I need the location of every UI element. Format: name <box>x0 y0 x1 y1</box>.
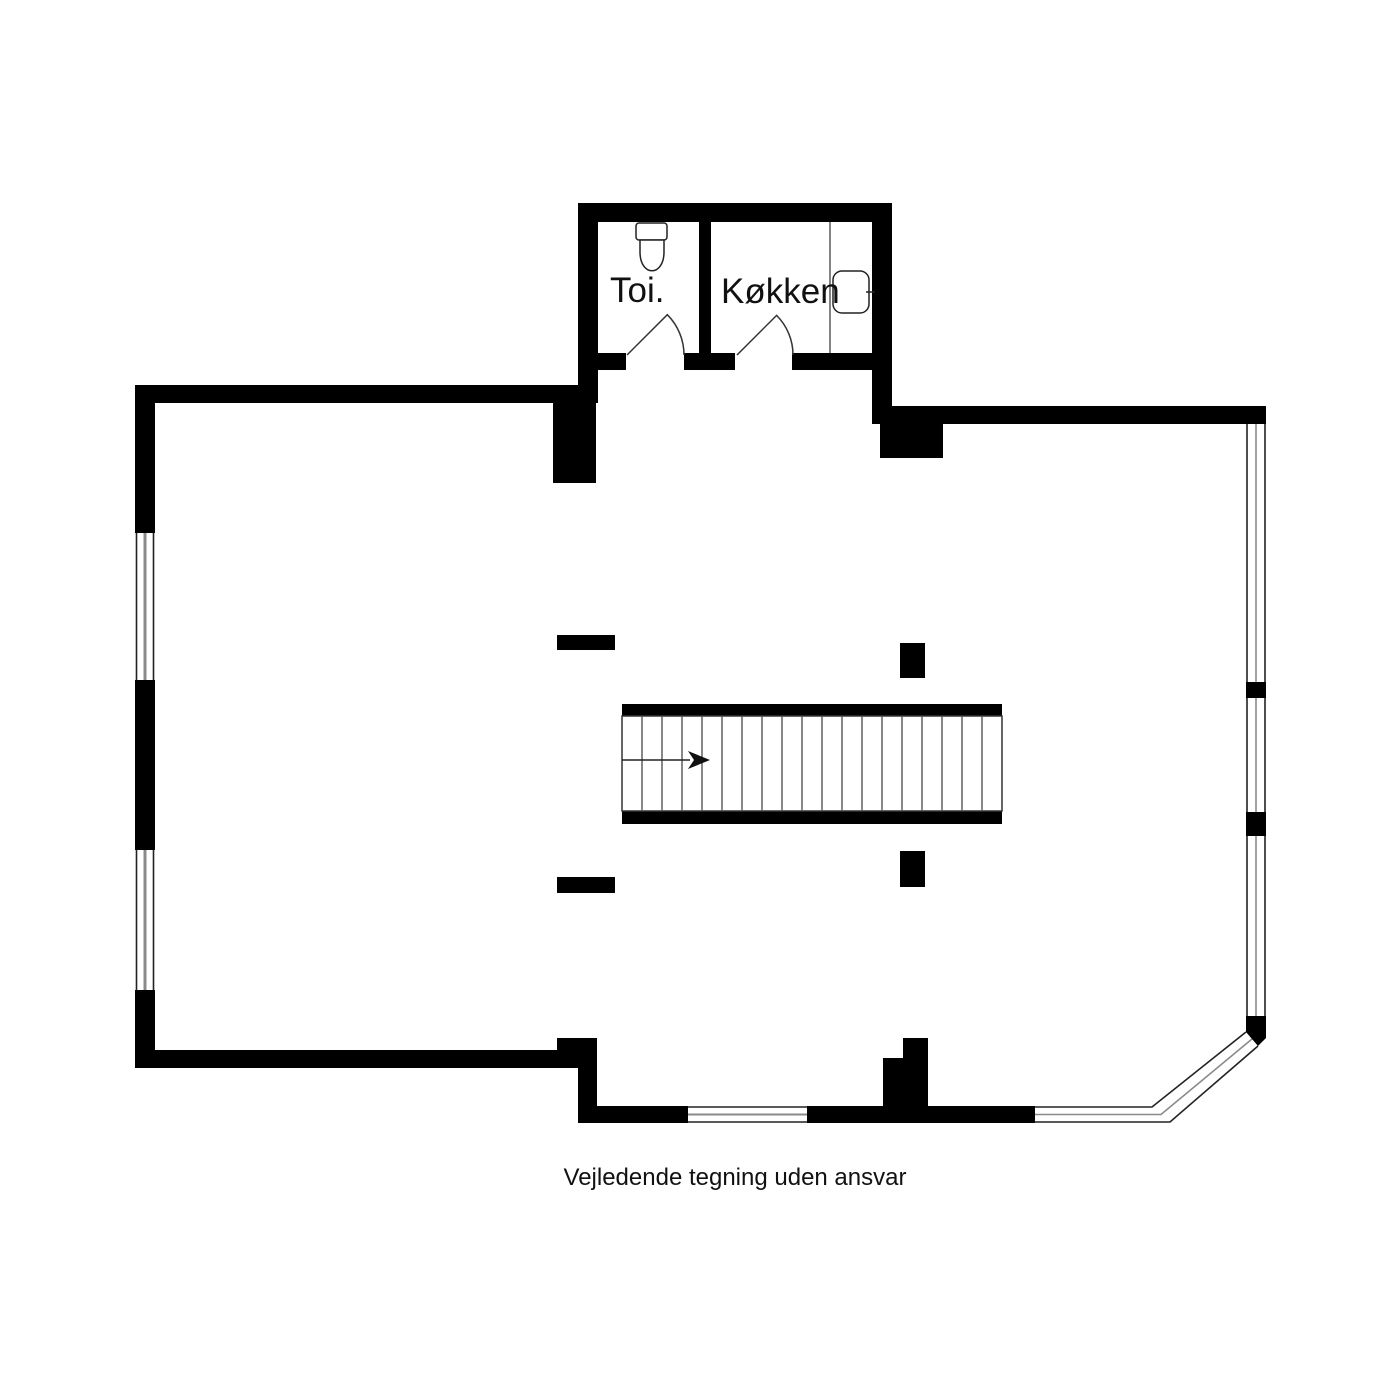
toilet-bowl <box>640 240 664 271</box>
wall-right-separator-1 <box>1246 682 1266 698</box>
wall-smallrooms-top <box>578 203 892 222</box>
stair-stringer-top <box>622 704 1002 716</box>
wall-toilet-kitchen-divider <box>699 222 711 355</box>
wall-bottom-step-connector <box>578 1068 597 1108</box>
floor-plan-page: Toi. Køkken Vejledende tegning uden ansv… <box>0 0 1400 1400</box>
floor-plan-drawing: Toi. Køkken Vejledende tegning uden ansv… <box>0 0 1400 1400</box>
toilet-tank <box>636 223 667 240</box>
wall-kitchen-right <box>872 222 892 424</box>
room-label-kitchen: Køkken <box>721 272 840 311</box>
wall-kitchen-door-jamb-right <box>792 353 872 370</box>
wall-entry-stub <box>553 385 596 483</box>
wall-stub-upper-right <box>900 643 925 678</box>
wall-bottom-left <box>135 1050 597 1068</box>
wall-bottom-pillar-top <box>903 1038 928 1060</box>
stair-stringer-bottom <box>622 811 1002 824</box>
wall-toilet-door-jamb-left <box>598 353 626 370</box>
wall-toilet-left <box>578 222 598 403</box>
wall-top-left <box>135 385 596 403</box>
wall-bottom-step-block <box>557 1038 597 1068</box>
wall-top-right-pillar <box>880 424 943 458</box>
wall-bottom-pillar <box>883 1058 928 1108</box>
wall-right-separator-2 <box>1246 812 1266 836</box>
disclaimer-text: Vejledende tegning uden ansvar <box>564 1164 907 1191</box>
wall-left-middle <box>135 680 155 850</box>
wall-left-upper <box>135 385 155 533</box>
room-label-toilet: Toi. <box>610 271 664 310</box>
wall-stub-upper-left <box>557 635 615 650</box>
wall-stub-lower-right <box>900 851 925 887</box>
wall-top-right <box>872 406 1266 424</box>
wall-bottom-lower-right <box>807 1106 1035 1123</box>
wall-between-doors <box>684 353 735 370</box>
wall-bottom-lower-left <box>578 1106 688 1123</box>
wall-stub-lower-left <box>557 877 615 893</box>
